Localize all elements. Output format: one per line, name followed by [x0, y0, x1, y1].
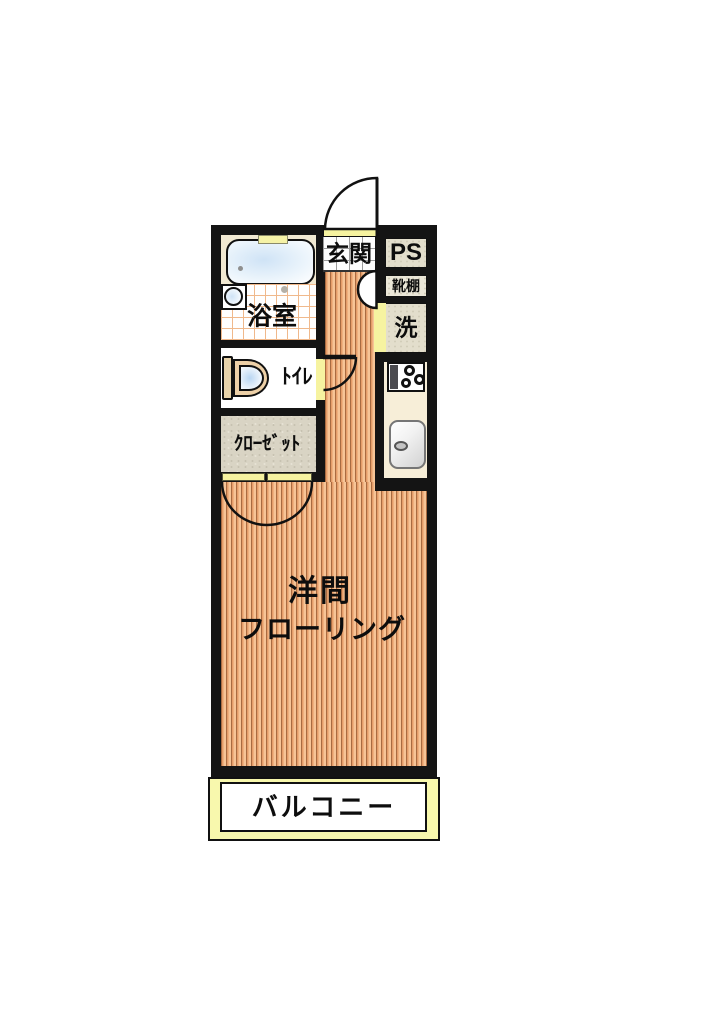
stove-burner	[401, 378, 411, 388]
label-washer: 洗	[395, 317, 418, 340]
stove-grill	[390, 365, 398, 389]
closet-door-panel-left	[222, 473, 265, 481]
bathtub-ledge	[258, 235, 288, 244]
label-main-room-flooring: フローリング	[238, 617, 406, 644]
label-shoe-shelf: 靴棚	[392, 279, 420, 293]
stove-burner	[414, 374, 425, 385]
toilet-door-opening	[316, 359, 325, 400]
label-entrance: 玄関	[326, 243, 372, 266]
toilet-tank	[222, 356, 233, 400]
label-toilet: ﾄｲﾚ	[281, 367, 313, 388]
label-bathroom: 浴室	[247, 305, 297, 330]
label-closet: ｸﾛｰｾﾞｯﾄ	[234, 435, 301, 454]
bathroom-drain-dot	[281, 286, 288, 293]
sink-drain	[394, 441, 408, 451]
entrance-door-threshold	[323, 226, 377, 237]
bathtub	[226, 239, 315, 285]
label-balcony: バルコニー	[252, 794, 396, 820]
washbasin-bowl	[224, 287, 243, 306]
label-pipe-space: PS	[390, 241, 422, 265]
bathtub-drain-dot	[238, 266, 243, 271]
hallway-flooring	[325, 272, 375, 482]
stove-burner	[404, 365, 415, 376]
washer-door-opening	[374, 303, 386, 352]
closet-door-panel-right	[267, 473, 312, 481]
kitchen-end-wall	[375, 478, 437, 491]
label-main-room: 洋間	[288, 577, 352, 607]
floorplan-page: 浴室 ﾄｲﾚ ｸﾛｰｾﾞｯﾄ 玄関 PS 靴棚 洗 洋間 フローリング バルコニ…	[0, 0, 724, 1024]
entrance-door-swing	[325, 178, 377, 229]
